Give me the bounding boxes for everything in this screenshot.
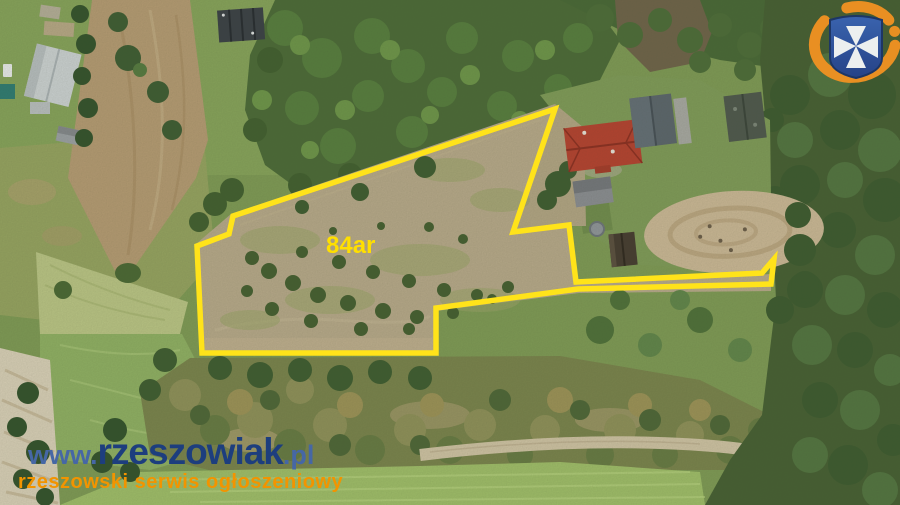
photo-grain [0, 0, 900, 505]
aerial-photo-scene: 84ar [0, 0, 900, 505]
watermark-tagline: rzeszowski serwis ogłoszeniowy [18, 472, 343, 492]
area-label: 84ar [326, 232, 375, 259]
watermark-brand: rzeszowiak [98, 431, 283, 472]
watermark-main: www.rzeszowiak.pl [28, 433, 343, 470]
watermark: www.rzeszowiak.pl rzeszowski serwis ogło… [28, 433, 343, 492]
watermark-tld: .pl [283, 440, 315, 470]
watermark-www: www. [28, 440, 98, 470]
aerial-photo: 84ar www.rzeszowiak.pl rzeszowski serwis… [0, 0, 900, 505]
rzeszow-crest-icon [806, 0, 900, 84]
